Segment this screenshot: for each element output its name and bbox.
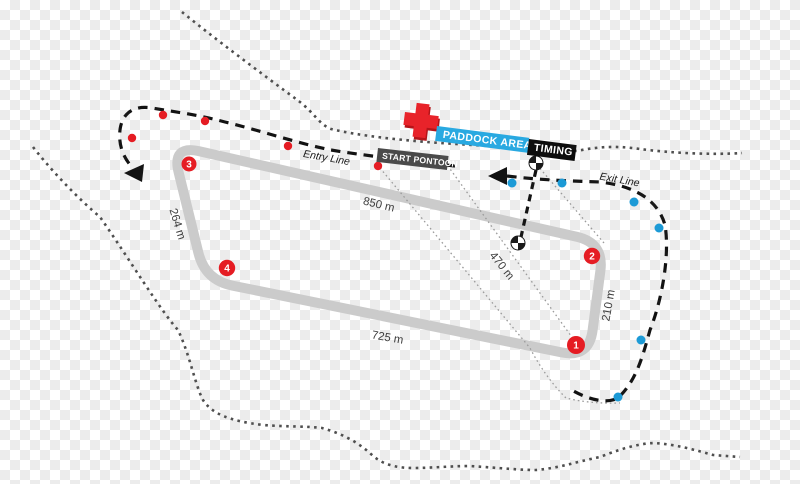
entry-buoy-dot bbox=[159, 111, 167, 119]
exit-arrow-icon bbox=[488, 167, 507, 185]
entry-buoy-dot bbox=[284, 142, 292, 150]
course-map-canvas: 1 2 3 4 850 m 725 m 264 m 470 m 210 m En… bbox=[0, 0, 800, 484]
distance-725: 725 m bbox=[371, 329, 405, 346]
turn-marker-4: 4 bbox=[219, 260, 235, 276]
turn-marker-3: 3 bbox=[182, 157, 197, 172]
svg-text:3: 3 bbox=[186, 160, 192, 171]
svg-text:2: 2 bbox=[589, 252, 595, 263]
exit-buoy-dot bbox=[558, 179, 567, 188]
exit-buoy-dot bbox=[508, 179, 517, 188]
entry-arrow-icon bbox=[124, 164, 144, 182]
timing-text: TIMING bbox=[533, 141, 573, 158]
distance-210: 210 m bbox=[600, 289, 617, 323]
entry-line-label: Entry Line bbox=[302, 148, 351, 168]
exit-buoy-dot bbox=[614, 393, 623, 402]
course-map: 1 2 3 4 850 m 725 m 264 m 470 m 210 m En… bbox=[0, 0, 800, 484]
exit-buoy-dot bbox=[630, 198, 639, 207]
exit-line-label: Exit Line bbox=[599, 171, 641, 190]
exit-buoys bbox=[508, 179, 664, 402]
exit-buoy-dot bbox=[637, 336, 646, 345]
sight-line-pontoon-turn1 bbox=[445, 162, 574, 340]
entry-buoy-dot bbox=[201, 117, 209, 125]
entry-buoy-dot bbox=[128, 134, 136, 142]
distance-470: 470 m bbox=[487, 250, 516, 282]
turn-marker-1: 1 bbox=[567, 336, 585, 354]
entry-buoy-dot bbox=[374, 162, 382, 170]
exit-line-path bbox=[507, 176, 667, 401]
svg-text:1: 1 bbox=[573, 341, 579, 352]
turn-marker-2: 2 bbox=[584, 248, 600, 264]
start-position-marker-top bbox=[529, 156, 543, 170]
exit-buoy-dot bbox=[655, 224, 664, 233]
track-outline bbox=[177, 150, 601, 353]
svg-text:4: 4 bbox=[224, 264, 230, 275]
start-position-marker-bottom bbox=[511, 236, 525, 250]
